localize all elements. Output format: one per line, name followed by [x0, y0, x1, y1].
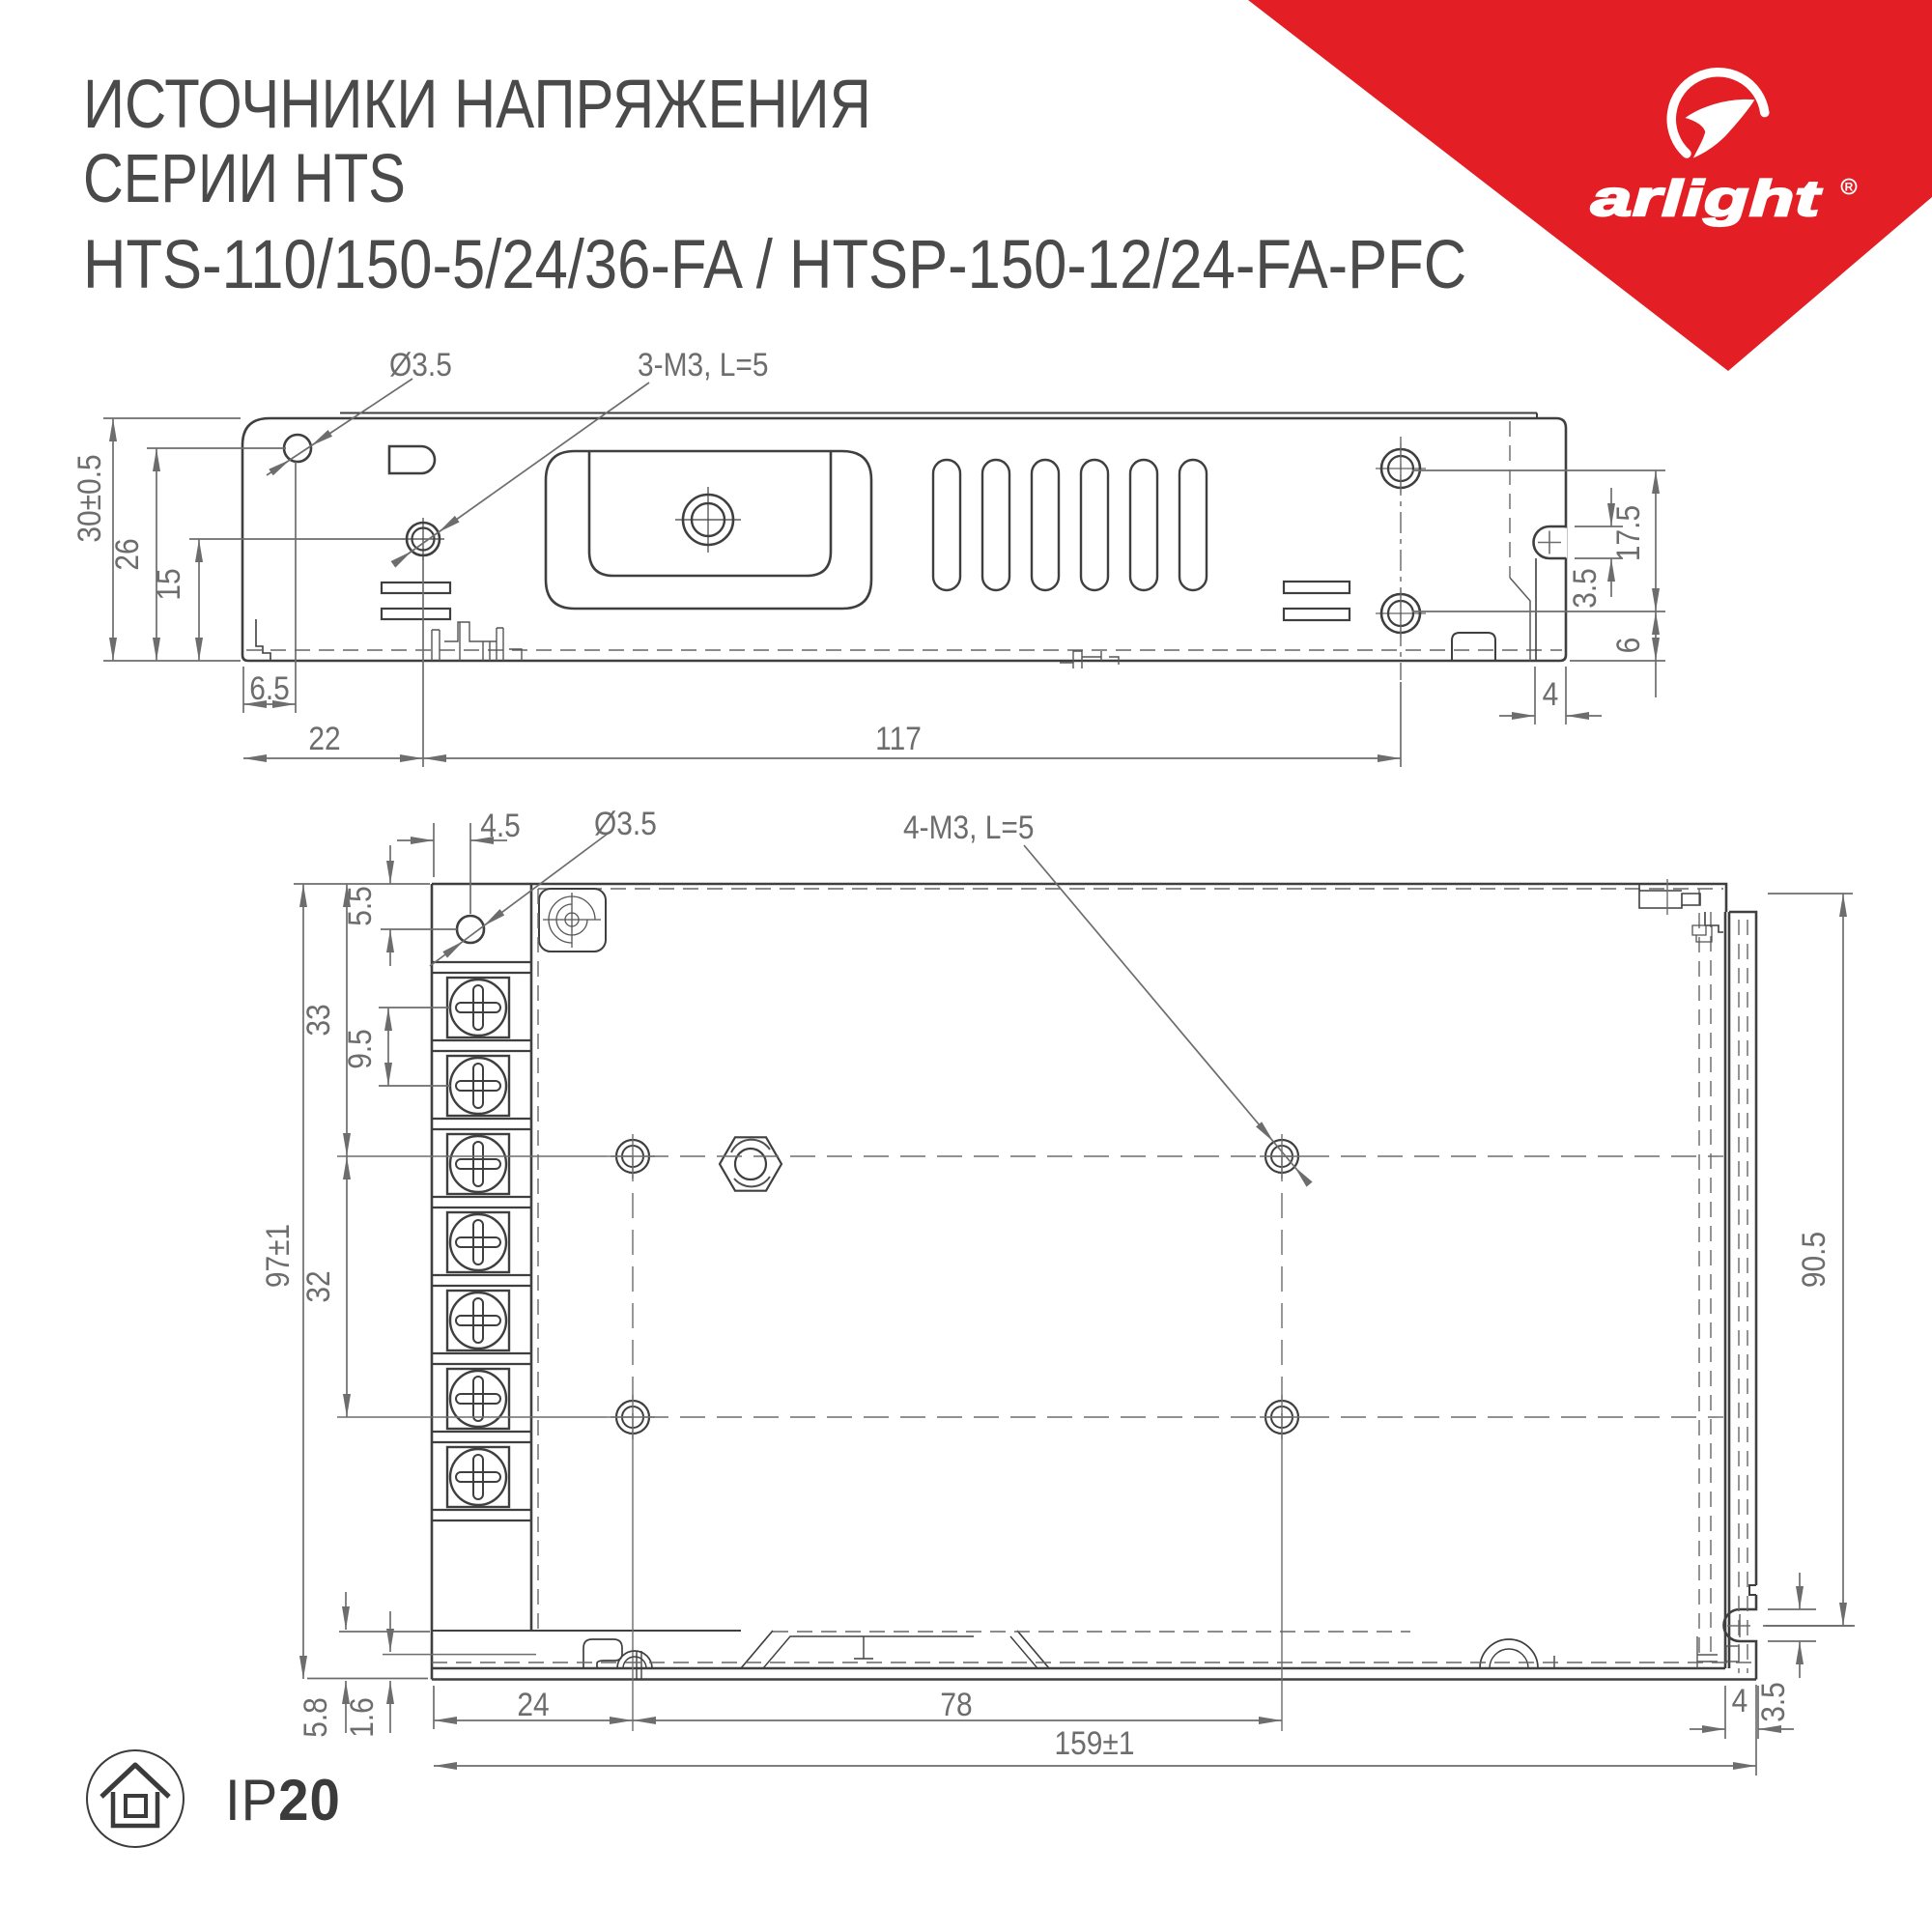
- svg-text:22: 22: [308, 720, 340, 756]
- svg-text:32: 32: [299, 1270, 336, 1302]
- svg-text:HTS-110/150-5/24/36-FA / HTSP-: HTS-110/150-5/24/36-FA / HTSP-150-12/24-…: [83, 227, 1466, 303]
- svg-text:78: 78: [940, 1686, 972, 1722]
- svg-text:24: 24: [517, 1686, 549, 1722]
- svg-text:4: 4: [1543, 675, 1559, 712]
- svg-text:30±0.5: 30±0.5: [71, 454, 107, 542]
- svg-text:arlight: arlight: [1591, 170, 1822, 226]
- svg-text:3.5: 3.5: [1566, 568, 1603, 609]
- svg-text:9.5: 9.5: [341, 1029, 378, 1069]
- svg-text:15: 15: [150, 568, 186, 600]
- svg-text:6.5: 6.5: [249, 669, 290, 706]
- svg-text:IP20: IP20: [225, 1768, 341, 1833]
- svg-text:6: 6: [1609, 638, 1646, 654]
- svg-text:ИСТОЧНИКИ НАПРЯЖЕНИЯ: ИСТОЧНИКИ НАПРЯЖЕНИЯ: [83, 66, 871, 142]
- svg-text:97±1: 97±1: [259, 1224, 296, 1288]
- svg-text:5.8: 5.8: [297, 1697, 333, 1738]
- svg-text:СЕРИИ HTS: СЕРИИ HTS: [83, 139, 406, 216]
- svg-text:33: 33: [299, 1004, 336, 1036]
- svg-text:Ø3.5: Ø3.5: [389, 346, 452, 383]
- svg-text:3-M3, L=5: 3-M3, L=5: [638, 346, 769, 383]
- svg-text:159±1: 159±1: [1055, 1724, 1135, 1761]
- svg-text:3.5: 3.5: [1754, 1682, 1791, 1722]
- svg-text:4.5: 4.5: [480, 807, 521, 843]
- svg-text:26: 26: [108, 538, 145, 570]
- svg-text:4: 4: [1732, 1682, 1748, 1719]
- svg-text:117: 117: [875, 720, 922, 756]
- svg-text:90.5: 90.5: [1795, 1232, 1832, 1288]
- svg-text:1.6: 1.6: [343, 1697, 380, 1738]
- svg-text:17.5: 17.5: [1609, 505, 1646, 561]
- svg-text:R: R: [1845, 181, 1854, 194]
- svg-text:4-M3, L=5: 4-M3, L=5: [903, 809, 1035, 845]
